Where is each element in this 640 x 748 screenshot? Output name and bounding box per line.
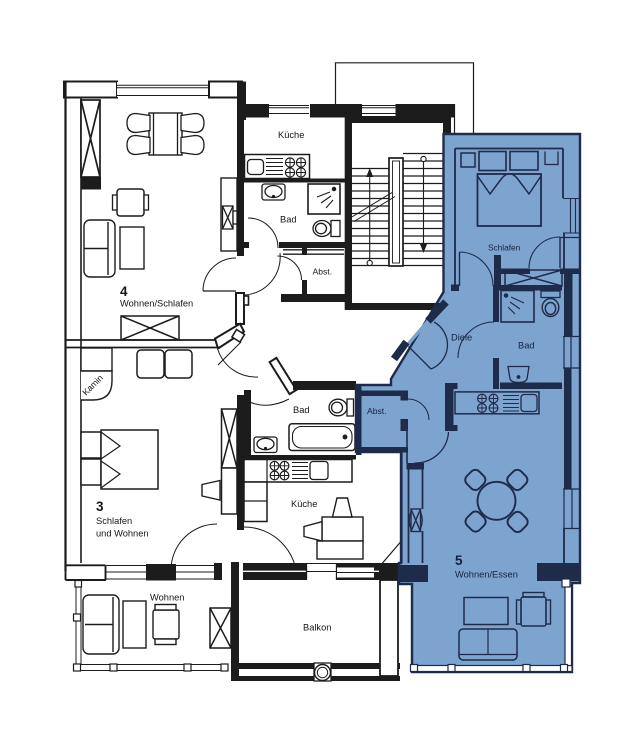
svg-text:Küche: Küche [278,130,304,140]
svg-text:und Wohnen: und Wohnen [96,529,149,539]
svg-text:Wohnen/Essen: Wohnen/Essen [455,570,518,580]
svg-text:Küche: Küche [291,499,317,509]
svg-text:5: 5 [455,553,463,568]
svg-text:Schlafen: Schlafen [488,243,521,253]
svg-text:Schlafen: Schlafen [96,516,132,526]
svg-text:Bad: Bad [280,215,297,225]
svg-text:Diele: Diele [451,333,472,343]
svg-text:Wohnen/Schlafen: Wohnen/Schlafen [120,299,193,309]
svg-text:Balkon: Balkon [303,623,331,633]
svg-text:Abst.: Abst. [367,406,387,416]
svg-text:Bad: Bad [518,341,535,351]
svg-text:3: 3 [96,499,104,514]
svg-text:Wohnen: Wohnen [150,593,184,603]
svg-text:Abst.: Abst. [313,267,333,277]
svg-text:Bad: Bad [293,405,310,415]
svg-text:4: 4 [120,284,128,299]
